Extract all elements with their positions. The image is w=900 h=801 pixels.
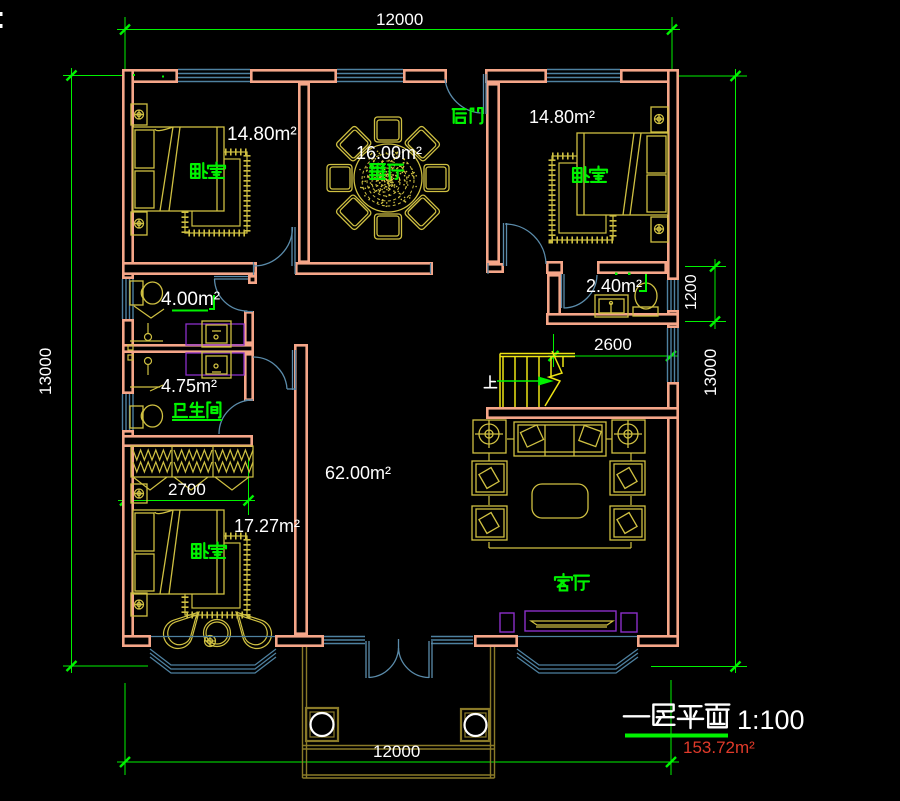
svg-text:62.00m²: 62.00m² xyxy=(325,463,391,483)
svg-text:1:100: 1:100 xyxy=(737,705,805,735)
svg-text:2.40m²: 2.40m² xyxy=(586,276,642,296)
svg-text:13000: 13000 xyxy=(36,348,55,395)
svg-text:2700: 2700 xyxy=(168,480,206,499)
svg-text:16.00m²: 16.00m² xyxy=(356,143,422,163)
svg-text:13000: 13000 xyxy=(701,349,720,396)
svg-text:4.75m²: 4.75m² xyxy=(161,376,217,396)
svg-text:2600: 2600 xyxy=(594,335,632,354)
svg-text:14.80m²: 14.80m² xyxy=(529,107,595,127)
svg-text:14.80m²: 14.80m² xyxy=(227,124,297,145)
svg-text:1200: 1200 xyxy=(683,274,700,310)
svg-text:4.00m²: 4.00m² xyxy=(161,289,220,310)
svg-text:153.72m²: 153.72m² xyxy=(683,738,755,757)
svg-text:12000: 12000 xyxy=(373,742,420,761)
svg-text:17.27m²: 17.27m² xyxy=(234,516,300,536)
svg-text:12000: 12000 xyxy=(376,10,423,29)
